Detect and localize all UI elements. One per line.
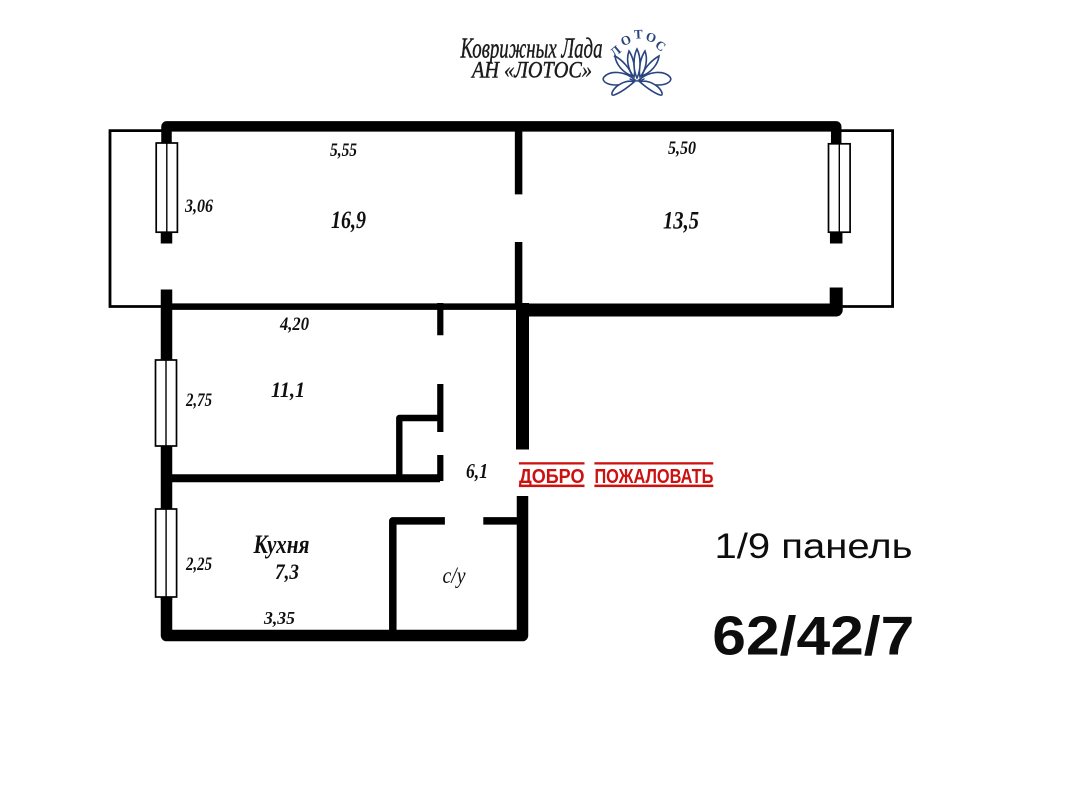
svg-text:Кухня: Кухня <box>253 530 310 559</box>
svg-text:3,35: 3,35 <box>263 608 295 628</box>
svg-text:7,3: 7,3 <box>275 559 299 584</box>
svg-text:16,9: 16,9 <box>331 207 366 234</box>
svg-text:2,75: 2,75 <box>185 390 212 411</box>
svg-text:2,25: 2,25 <box>185 554 212 575</box>
svg-text:5,50: 5,50 <box>668 138 696 159</box>
svg-text:62/42/7: 62/42/7 <box>712 605 914 667</box>
svg-text:с/у: с/у <box>443 563 467 588</box>
svg-text:ПОЖАЛОВАТЬ: ПОЖАЛОВАТЬ <box>594 465 713 488</box>
svg-text:6,1: 6,1 <box>466 459 488 483</box>
svg-text:3,06: 3,06 <box>184 196 213 217</box>
svg-text:5,55: 5,55 <box>330 140 357 161</box>
svg-text:ДОБРО: ДОБРО <box>519 465 585 488</box>
svg-text:13,5: 13,5 <box>663 208 699 235</box>
svg-text:4,20: 4,20 <box>279 314 309 335</box>
svg-text:АН «ЛОТОС»: АН «ЛОТОС» <box>470 58 592 83</box>
svg-text:1/9 панель: 1/9 панель <box>715 526 913 566</box>
svg-text:11,1: 11,1 <box>271 377 305 402</box>
svg-text:Т: Т <box>634 26 644 41</box>
